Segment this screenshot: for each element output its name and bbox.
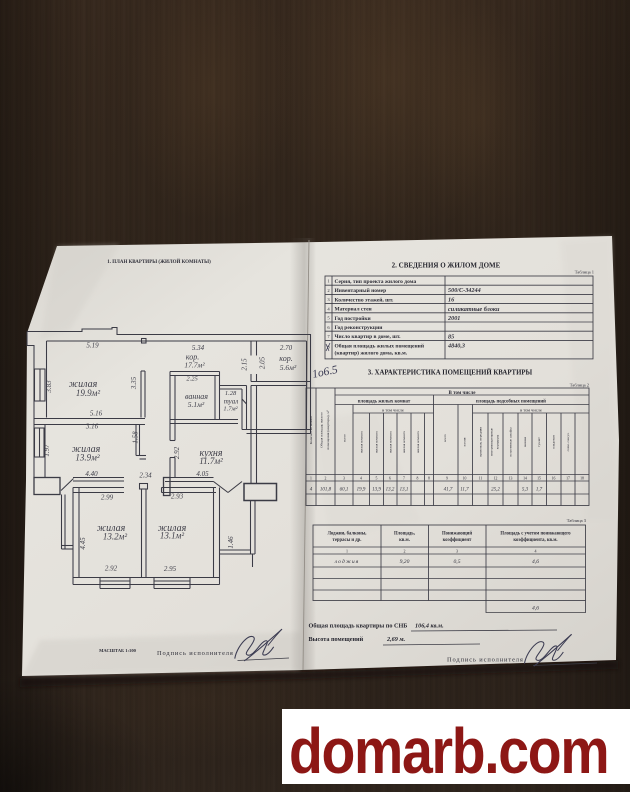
svg-text:11.7м²: 11.7м² (199, 456, 223, 466)
svg-text:11: 11 (479, 476, 483, 480)
svg-text:2.92: 2.92 (173, 446, 181, 459)
svg-text:совм. сан.уз.: совм. сан.уз. (566, 432, 570, 451)
svg-text:туалет: туалет (537, 437, 541, 447)
svg-text:Число квартир в доме, шт.: Число квартир в доме, шт. (335, 334, 402, 340)
svg-text:5: 5 (376, 476, 378, 480)
svg-text:19.9м²: 19.9м² (76, 388, 100, 398)
svg-text:Площадь,: Площадь, (394, 532, 415, 537)
svg-text:1.28: 1.28 (225, 390, 237, 397)
svg-text:в том числе: в том числе (520, 408, 542, 413)
svg-text:жилая комната: жилая комната (360, 431, 364, 454)
svg-text:жилая комната: жилая комната (389, 431, 393, 454)
svg-text:4,6: 4,6 (532, 606, 539, 612)
svg-text:1: 1 (310, 476, 312, 480)
svg-text:коэффициент: коэффициент (443, 538, 472, 543)
svg-text:13.1м²: 13.1м² (160, 531, 184, 541)
svg-text:Подпись исполнителя: Подпись исполнителя (447, 657, 524, 664)
svg-text:9: 9 (446, 476, 448, 480)
svg-text:3: 3 (343, 476, 345, 480)
svg-text:13.2м²: 13.2м² (103, 532, 127, 542)
svg-text:коэффициента, кв.м.: коэффициента, кв.м. (513, 538, 557, 543)
svg-text:(квартир) жилого дома, кв.м.: (квартир) жилого дома, кв.м. (335, 350, 408, 357)
svg-text:4: 4 (535, 549, 537, 554)
svg-text:2.25: 2.25 (186, 376, 198, 383)
svg-text:внутриквартирные: внутриквартирные (490, 428, 494, 456)
svg-text:4: 4 (360, 476, 362, 480)
svg-text:террасы и др.: террасы и др. (333, 538, 362, 543)
svg-text:1.7м²: 1.7м² (223, 406, 238, 413)
svg-text:всего: всего (443, 434, 447, 442)
svg-text:кв.м.: кв.м. (399, 538, 410, 543)
svg-text:в том числе: в том числе (382, 408, 404, 413)
svg-text:5,3: 5,3 (522, 488, 529, 493)
svg-text:13,9: 13,9 (372, 488, 381, 493)
svg-text:11,7: 11,7 (460, 488, 469, 493)
svg-text:3: 3 (456, 549, 458, 554)
svg-text:1.97: 1.97 (43, 444, 51, 457)
svg-text:3.35: 3.35 (130, 376, 138, 390)
svg-text:13,2: 13,2 (386, 488, 395, 493)
svg-text:Таблица 1: Таблица 1 (575, 270, 594, 275)
svg-text:Таблица 3: Таблица 3 (567, 518, 587, 523)
svg-text:14: 14 (523, 476, 527, 480)
svg-text:коридоры: коридоры (496, 434, 500, 449)
svg-text:2.34: 2.34 (139, 472, 152, 480)
svg-text:2.15: 2.15 (241, 358, 249, 371)
svg-text:4.05: 4.05 (196, 470, 209, 478)
svg-text:2.92: 2.92 (105, 565, 118, 573)
svg-text:4.40: 4.40 (85, 470, 98, 478)
svg-text:Год реконструкции: Год реконструкции (335, 325, 384, 331)
svg-text:жилая комната: жилая комната (416, 431, 420, 454)
svg-text:13,1: 13,1 (400, 488, 409, 493)
svg-text:15: 15 (537, 476, 541, 480)
svg-text:101,8: 101,8 (320, 488, 332, 493)
svg-text:МАСШТАБ 1:100: МАСШТАБ 1:100 (99, 648, 137, 653)
svg-text:всего: всего (343, 434, 347, 442)
svg-text:1,7: 1,7 (536, 488, 543, 493)
svg-text:2.70: 2.70 (280, 344, 293, 352)
svg-text:2.95: 2.95 (164, 565, 177, 573)
svg-text:17.7м²: 17.7м² (184, 361, 205, 370)
svg-text:13: 13 (509, 476, 513, 480)
svg-text:Количество этажей, шт.: Количество этажей, шт. (335, 296, 395, 303)
svg-text:встроенные шкафы: встроенные шкафы (509, 427, 513, 457)
svg-text:4,6: 4,6 (532, 559, 539, 565)
svg-text:площадь подсобных помещений: площадь подсобных помещений (476, 400, 546, 405)
svg-text:7: 7 (403, 476, 405, 480)
svg-text:Общая площадь жилых помещений: Общая площадь жилых помещений (335, 342, 425, 349)
svg-text:3.83: 3.83 (45, 380, 53, 394)
svg-text:2.05: 2.05 (259, 356, 267, 369)
svg-text:1. ПЛАН КВАРТИРЫ (ЖИЛОЙ КОМНАТ: 1. ПЛАН КВАРТИРЫ (ЖИЛОЙ КОМНАТЫ) (107, 259, 211, 265)
svg-text:Количество комнат: Количество комнат (309, 415, 313, 444)
svg-text:1.46: 1.46 (227, 536, 235, 549)
svg-text:Подпись исполнителя: Подпись исполнителя (157, 650, 234, 657)
svg-text:Материал стен: Материал стен (335, 307, 373, 313)
svg-text:Высота помещений: Высота помещений (309, 636, 364, 643)
svg-text:500/С-34244: 500/С-34244 (448, 287, 481, 294)
svg-text:5.16: 5.16 (90, 410, 103, 418)
svg-text:17: 17 (566, 476, 570, 480)
svg-text:25,2: 25,2 (491, 488, 500, 493)
svg-text:13.9м²: 13.9м² (75, 453, 99, 463)
svg-text:кладовая: кладовая (552, 435, 556, 449)
svg-text:жилая комната: жилая комната (402, 431, 406, 454)
svg-text:Понижающий: Понижающий (442, 532, 472, 537)
svg-text:8: 8 (428, 476, 430, 480)
svg-text:2: 2 (404, 549, 406, 554)
svg-text:2001: 2001 (447, 315, 460, 322)
svg-text:1: 1 (346, 549, 348, 554)
svg-text:19,9: 19,9 (357, 488, 366, 493)
svg-text:туал: туал (224, 398, 239, 406)
svg-text:4.45: 4.45 (79, 537, 87, 550)
svg-text:лоджия: лоджия (334, 558, 360, 565)
svg-text:12: 12 (494, 476, 498, 480)
svg-text:2.93: 2.93 (171, 493, 184, 501)
svg-text:Инвентарный номер: Инвентарный номер (335, 287, 387, 294)
svg-text:кор.: кор. (279, 354, 292, 363)
svg-text:8: 8 (417, 476, 419, 480)
svg-text:2: 2 (325, 476, 327, 480)
svg-text:жилая комната: жилая комната (375, 431, 379, 454)
svg-text:5.19: 5.19 (86, 342, 99, 350)
svg-text:силикатные блоки: силикатные блоки (448, 306, 500, 313)
svg-text:Общая площадь квартиры по СНБ: Общая площадь квартиры по СНБ (309, 623, 408, 630)
svg-text:41,7: 41,7 (444, 488, 453, 493)
svg-text:3. ХАРАКТЕРИСТИКА ПОМЕЩЕНИЙ КВ: 3. ХАРАКТЕРИСТИКА ПОМЕЩЕНИЙ КВАРТИРЫ (368, 369, 533, 377)
svg-text:4840,3: 4840,3 (447, 343, 465, 350)
svg-text:В том числе: В том числе (449, 391, 477, 396)
svg-text:85: 85 (448, 333, 454, 340)
svg-text:площадь жилых комнат: площадь жилых комнат (358, 400, 411, 405)
svg-text:Серия, тип проекта жилого дома: Серия, тип проекта жилого дома (335, 279, 417, 285)
svg-text:6: 6 (389, 476, 391, 480)
svg-text:Площадь с учетом понижающего: Площадь с учетом понижающего (500, 532, 571, 537)
svg-text:Таблица 2: Таблица 2 (570, 383, 589, 388)
svg-text:Год постройки: Год постройки (335, 315, 372, 322)
svg-text:Общая площадь жилого: Общая площадь жилого (320, 412, 324, 448)
svg-text:16: 16 (552, 476, 556, 480)
svg-text:2.99: 2.99 (101, 494, 114, 502)
svg-text:5.1м²: 5.1м² (188, 400, 205, 409)
svg-text:2. СВЕДЕНИЯ О ЖИЛОМ ДОМЕ: 2. СВЕДЕНИЯ О ЖИЛОМ ДОМЕ (392, 262, 501, 270)
svg-text:кухня: кухня (463, 437, 467, 446)
svg-text:0,5: 0,5 (454, 559, 461, 565)
svg-text:3.16: 3.16 (85, 423, 99, 431)
svg-text:Лоджии, балконы,: Лоджии, балконы, (328, 532, 367, 537)
svg-text:9,20: 9,20 (400, 559, 410, 565)
svg-text:10: 10 (463, 476, 467, 480)
svg-text:16: 16 (448, 297, 455, 304)
svg-text:18: 18 (580, 476, 584, 480)
svg-text:2,69 м.: 2,69 м. (386, 636, 406, 643)
svg-text:ванная: ванная (523, 437, 527, 447)
svg-text:5.34: 5.34 (192, 344, 205, 352)
svg-text:106,4 кв.м.: 106,4 кв.м. (415, 623, 444, 630)
svg-text:5.6м²: 5.6м² (280, 363, 297, 372)
svg-text:60,1: 60,1 (340, 488, 349, 493)
